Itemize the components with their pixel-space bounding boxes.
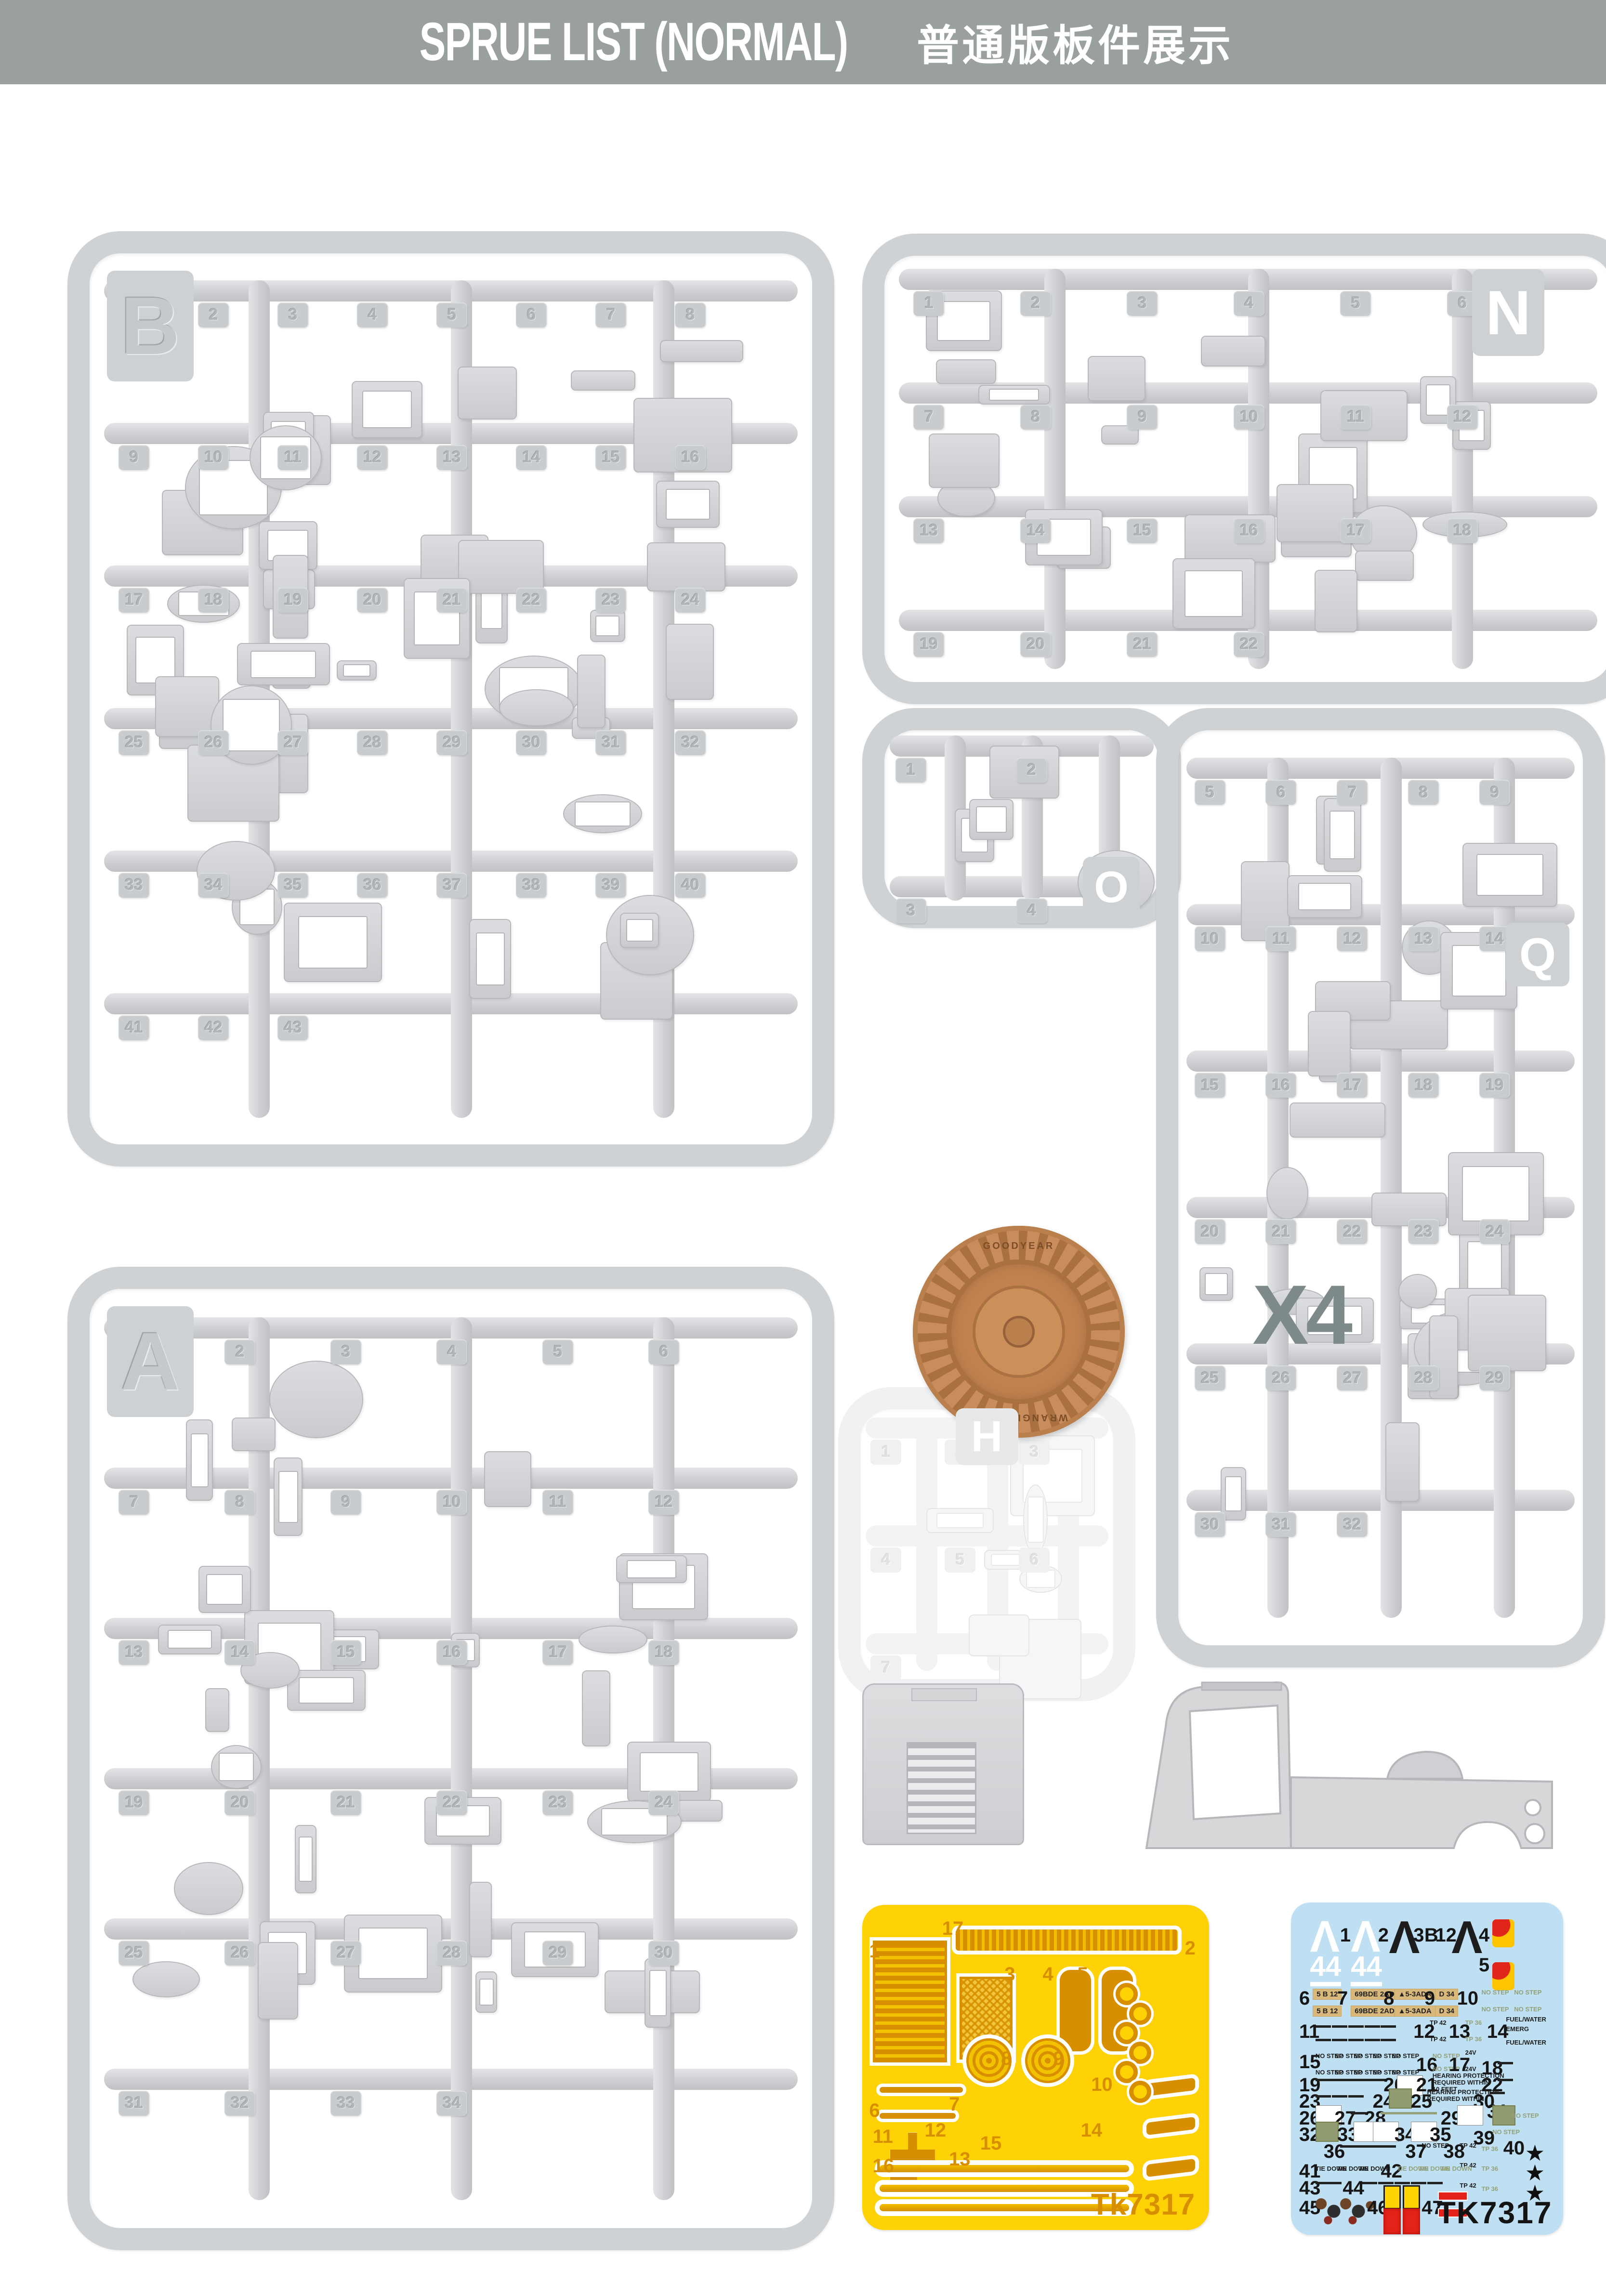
pe-part-number xyxy=(1129,2081,1151,2103)
part-number-tag: 16 xyxy=(1234,518,1264,543)
decal-item xyxy=(1457,2105,1483,2125)
decal-item xyxy=(1316,2025,1331,2028)
part-number-tag: 28 xyxy=(1408,1365,1439,1391)
decal-item: 40 xyxy=(1503,2139,1525,2158)
decal-item: D 34 xyxy=(1435,2006,1458,2017)
photo-etch-fret: 1172345678910111213141516 Tk7317 xyxy=(862,1905,1209,2230)
sprue-b: 1234567891011121314151617181920212223242… xyxy=(67,231,834,1167)
molded-part xyxy=(936,359,997,384)
sprue-runner xyxy=(1452,269,1473,669)
decal-item xyxy=(1403,2208,1420,2234)
part-number-tag: 3 xyxy=(1127,291,1158,316)
molded-part xyxy=(352,381,422,438)
decal-item: 5 B 12 xyxy=(1313,2006,1342,2017)
sprue-b-parts-area: 1234567891011121314151617181920212223242… xyxy=(90,253,812,1144)
decal-item xyxy=(1354,2145,1369,2148)
decal-item: NO STEP xyxy=(1482,1989,1509,1996)
part-number-tag: 41 xyxy=(118,1015,149,1040)
part-number-tag: 15 xyxy=(595,445,626,470)
molded-part xyxy=(198,1566,251,1613)
pe-part-number: 8 xyxy=(1001,2048,1012,2070)
decal-item: 5 xyxy=(1479,1955,1489,1975)
decal-item xyxy=(1316,2095,1331,2098)
molded-part xyxy=(458,540,544,593)
pe-part-number: 5 xyxy=(1077,1964,1088,1985)
decal-item xyxy=(1381,2112,1396,2114)
part-number-tag: 42 xyxy=(198,1015,229,1040)
part-number-tag: 31 xyxy=(118,2091,149,2116)
decal-item xyxy=(1383,2185,1401,2209)
part-number-tag: 19 xyxy=(913,632,944,657)
decal-item xyxy=(1316,2039,1331,2041)
molded-part xyxy=(295,1825,316,1893)
part-number-tag: 10 xyxy=(198,445,229,470)
pe-part-number: 10 xyxy=(1091,2074,1113,2096)
part-number-tag: 2 xyxy=(224,1339,255,1364)
part-number-tag: 38 xyxy=(516,873,547,898)
molded-part xyxy=(590,610,625,642)
decal-item: 24V xyxy=(1465,2065,1476,2073)
molded-part xyxy=(211,1745,262,1789)
molded-part xyxy=(1199,1267,1234,1301)
molded-part xyxy=(258,1942,298,2020)
decal-item: FUEL/WATER xyxy=(1506,2016,1546,2023)
molded-part xyxy=(337,660,377,681)
part-number-tag: 17 xyxy=(1337,1073,1368,1098)
part-number-tag: 2 xyxy=(1016,758,1047,783)
molded-part xyxy=(645,1958,671,2028)
decal-sheet: Λ1Λ44442Λ3B12Λ4565 B 12769BDE 2ADA8▲5-3A… xyxy=(1291,1902,1563,2235)
part-number-tag: 32 xyxy=(1337,1512,1368,1537)
sprue-o: 1234 O xyxy=(862,708,1181,928)
decal-item xyxy=(1332,2039,1347,2041)
part-number-tag: 6 xyxy=(1019,1548,1050,1573)
part-number-tag: 9 xyxy=(118,445,149,470)
part-number-tag: 6 xyxy=(1265,780,1296,805)
decal-item: Λ xyxy=(1351,1919,1380,1955)
pe-part-number: 1 xyxy=(869,1941,880,1962)
decal-item: 6 xyxy=(1299,1989,1310,2008)
part-number-tag: 30 xyxy=(1195,1512,1225,1537)
decal-item: NO STEP xyxy=(1514,1989,1541,1996)
part-number-tag: 21 xyxy=(330,1790,361,1815)
part-number-tag: 25 xyxy=(118,1941,149,1966)
part-number-tag: 16 xyxy=(436,1640,467,1665)
part-number-tag: 22 xyxy=(1337,1219,1368,1244)
part-number-tag: 22 xyxy=(436,1790,467,1815)
decal-item xyxy=(1332,2025,1347,2028)
molded-part xyxy=(620,913,659,948)
part-number-tag: 33 xyxy=(118,873,149,898)
pe-part-number xyxy=(1116,2061,1138,2083)
wheel-hub-cap xyxy=(1003,1316,1034,1347)
part-number-tag: 14 xyxy=(516,445,547,470)
molded-part xyxy=(1201,336,1266,367)
molded-part xyxy=(232,1417,275,1451)
sprue-h-clear: 1234567 H xyxy=(838,1387,1135,1701)
molded-part xyxy=(656,481,720,528)
decal-item: TP 42 xyxy=(1460,2142,1476,2149)
part-number-tag: 31 xyxy=(595,730,626,755)
molded-part xyxy=(571,370,635,391)
wheel-hub xyxy=(973,1286,1065,1378)
decal-item xyxy=(1367,2145,1382,2148)
part-number-tag: 17 xyxy=(118,588,149,613)
decal-item xyxy=(1492,1919,1514,1947)
decal-item xyxy=(1383,2208,1401,2234)
molded-part xyxy=(647,542,725,591)
decal-item xyxy=(1362,2182,1377,2184)
molded-part xyxy=(186,1419,213,1501)
molded-part xyxy=(1385,1422,1420,1502)
molded-part xyxy=(155,676,219,737)
sprue-letter-n: N xyxy=(1472,269,1544,356)
engine-hood-part xyxy=(862,1683,1024,1845)
decal-item xyxy=(1329,2079,1344,2081)
molded-part xyxy=(499,689,574,727)
part-number-tag: 21 xyxy=(436,588,467,613)
part-number-tag: 43 xyxy=(277,1015,308,1040)
part-number-tag: 2 xyxy=(198,302,229,328)
pe-part-number: 15 xyxy=(980,2133,1002,2154)
decal-item: TP 36 xyxy=(1465,2035,1482,2043)
decal-item xyxy=(1348,2039,1364,2041)
part-number-tag: 7 xyxy=(870,1655,901,1680)
part-number-tag: 34 xyxy=(436,2091,467,2116)
molded-part xyxy=(174,1862,244,1915)
part-number-tag: 4 xyxy=(1234,291,1264,316)
decal-item xyxy=(1351,2112,1366,2114)
molded-part xyxy=(969,799,1014,840)
part-number-tag: 27 xyxy=(330,1941,361,1966)
decal-item: TP 42 xyxy=(1460,2182,1476,2189)
sprue-runner xyxy=(916,1417,937,1671)
part-number-tag: 32 xyxy=(675,730,706,755)
part-number-tag: 20 xyxy=(1195,1219,1225,1244)
part-number-tag: 17 xyxy=(1340,518,1371,543)
molded-part xyxy=(287,1670,366,1711)
part-number-tag: 12 xyxy=(357,445,388,470)
part-number-tag: 15 xyxy=(1127,518,1158,543)
part-number-tag: 7 xyxy=(118,1490,149,1515)
sprue-q: 5678910111213141516171819202122232425262… xyxy=(1156,708,1605,1667)
part-number-tag: 21 xyxy=(1265,1219,1296,1244)
sprue-letter-o: O xyxy=(1083,857,1140,918)
cab-shell-part xyxy=(1118,1654,1561,1850)
decal-item: NO STEP xyxy=(1514,2006,1541,2013)
decal-item: TP 36 xyxy=(1482,2145,1498,2152)
part-number-tag: 14 xyxy=(224,1640,255,1665)
molded-part xyxy=(284,903,382,982)
decal-item: 44 xyxy=(1351,1953,1382,1986)
part-number-tag: 13 xyxy=(1408,926,1439,951)
part-number-tag: 24 xyxy=(648,1790,679,1815)
decal-item: TP 42 xyxy=(1430,2035,1446,2043)
part-number-tag: 23 xyxy=(542,1790,573,1815)
part-number-tag: 11 xyxy=(1265,926,1296,951)
pe-part-number: 14 xyxy=(1081,2120,1103,2141)
decal-item: NO STEP xyxy=(1392,2052,1419,2060)
part-number-tag: 20 xyxy=(1020,632,1051,657)
molded-part xyxy=(237,643,330,685)
part-number-tag: 13 xyxy=(913,518,944,543)
part-number-tag: 23 xyxy=(1408,1219,1439,1244)
decal-item xyxy=(1427,2182,1443,2184)
decal-item: 4 xyxy=(1479,1926,1489,1945)
part-number-tag: 8 xyxy=(224,1490,255,1515)
part-number-tag: 5 xyxy=(542,1339,573,1364)
decal-item: TIE DOWN xyxy=(1441,2165,1472,2172)
molded-part xyxy=(469,919,511,999)
part-number-tag: 13 xyxy=(118,1640,149,1665)
sprue-letter-a: A xyxy=(107,1306,194,1417)
tire-brand-text: GOODYEAR xyxy=(983,1241,1055,1252)
part-number-tag: 16 xyxy=(675,445,706,470)
decal-item xyxy=(1332,2095,1347,2098)
decal-sheet-code: TK7317 xyxy=(1437,2195,1553,2230)
pe-part-number xyxy=(1129,2042,1151,2064)
decal-item: FUEL/WATER xyxy=(1506,2039,1546,2046)
sprue-q-parts-area: 5678910111213141516171819202122232425262… xyxy=(1178,730,1583,1645)
sprue-runner xyxy=(1044,269,1066,669)
decal-item xyxy=(1378,2182,1394,2184)
decal-item xyxy=(1422,2112,1437,2114)
decal-item xyxy=(1343,2079,1358,2081)
part-number-tag: 7 xyxy=(913,405,944,430)
molded-part xyxy=(660,340,744,363)
part-number-tag: 30 xyxy=(516,730,547,755)
decal-item: 44 xyxy=(1310,1953,1342,1986)
decal-item: 24V xyxy=(1465,2049,1476,2056)
molded-part xyxy=(1172,558,1255,629)
part-number-tag: 23 xyxy=(595,588,626,613)
part-number-tag: 22 xyxy=(1234,632,1264,657)
molded-part xyxy=(1324,798,1361,872)
decal-item xyxy=(1489,2092,1505,2094)
part-number-tag: 11 xyxy=(542,1490,573,1515)
sprue-letter-q: Q xyxy=(1506,923,1569,986)
part-number-tag: 9 xyxy=(1127,405,1158,430)
molded-part xyxy=(1290,1102,1385,1138)
part-number-tag: 24 xyxy=(1479,1219,1510,1244)
molded-part xyxy=(274,1457,303,1536)
decal-item: 10 xyxy=(1457,1989,1479,2008)
part-number-tag: 18 xyxy=(198,588,229,613)
part-number-tag: 6 xyxy=(516,302,547,328)
molded-part xyxy=(616,1555,687,1584)
molded-part xyxy=(926,1508,994,1533)
decal-item xyxy=(1316,2122,1339,2142)
decal-item: 1 xyxy=(1340,1926,1351,1945)
part-number-tag: 8 xyxy=(1020,405,1051,430)
sprue-list-page: SPRUE LIST (NORMAL) 普通版板件展示 123456789101… xyxy=(0,0,1606,2296)
molded-part xyxy=(577,655,606,728)
decal-item: NO STEP xyxy=(1482,2006,1509,2013)
molded-part xyxy=(978,385,1050,405)
sprue-letter-h: H xyxy=(956,1408,1018,1465)
part-number-tag: 18 xyxy=(1408,1073,1439,1098)
decal-item: TP 36 xyxy=(1482,2185,1498,2192)
part-number-tag: 2 xyxy=(1020,291,1051,316)
decal-item xyxy=(1365,2025,1380,2028)
molded-part xyxy=(269,1361,364,1438)
pe-part-number: 9 xyxy=(1053,2048,1064,2070)
part-number-tag: 5 xyxy=(1195,780,1225,805)
decal-item xyxy=(1403,2185,1420,2209)
molded-part xyxy=(929,433,1000,488)
page-title-en: SPRUE LIST (NORMAL) xyxy=(419,11,847,73)
part-number-tag: 4 xyxy=(870,1548,901,1573)
part-number-tag: 4 xyxy=(1016,898,1047,923)
part-number-tag: 15 xyxy=(330,1640,361,1665)
pe-part-number: 2 xyxy=(1185,1938,1196,1959)
molded-part xyxy=(1287,875,1363,918)
decal-item: TP 36 xyxy=(1465,2019,1482,2026)
wheel-quantity-label: X4 xyxy=(1252,1267,1350,1364)
part-number-tag: 5 xyxy=(945,1548,975,1573)
molded-part xyxy=(158,1625,221,1654)
part-number-tag: 27 xyxy=(1337,1365,1368,1391)
sprue-a: 1234567891011121314151617181920212223242… xyxy=(67,1267,834,2250)
part-number-tag: 10 xyxy=(436,1490,467,1515)
pe-part-number: 16 xyxy=(873,2155,895,2177)
decal-item xyxy=(1340,2145,1356,2148)
part-number-tag: 3 xyxy=(277,302,308,328)
part-number-tag: 20 xyxy=(357,588,388,613)
pe-part-number: 11 xyxy=(873,2126,893,2148)
pe-part-number: 3 xyxy=(1004,1964,1015,1985)
pe-part-number: 17 xyxy=(942,1918,964,1940)
header-bar: SPRUE LIST (NORMAL) 普通版板件展示 xyxy=(0,0,1606,84)
decal-item xyxy=(1492,1962,1514,1990)
part-number-tag: 7 xyxy=(1337,780,1368,805)
part-number-tag: 29 xyxy=(542,1941,573,1966)
part-number-tag: 26 xyxy=(198,730,229,755)
part-number-tag: 30 xyxy=(648,1941,679,1966)
molded-part xyxy=(205,1688,229,1732)
decal-item: ▲5-3ADA xyxy=(1395,2006,1435,2017)
page-title-zh: 普通版板件展示 xyxy=(917,12,1234,73)
decal-item: Λ xyxy=(1310,1919,1340,1955)
decal-item xyxy=(1411,2182,1426,2184)
part-number-tag: 13 xyxy=(436,445,467,470)
decal-item: NO STEP xyxy=(1492,2128,1520,2136)
part-number-tag: 25 xyxy=(118,730,149,755)
part-number-tag: 35 xyxy=(277,873,308,898)
molded-part xyxy=(1468,1295,1546,1371)
part-number-tag: 28 xyxy=(357,730,388,755)
pe-part-number xyxy=(1116,1983,1138,2005)
part-number-tag: 37 xyxy=(436,873,467,898)
part-number-tag: 9 xyxy=(330,1490,361,1515)
pe-part-number: 4 xyxy=(1042,1964,1053,1985)
sprue-a-parts-area: 1234567891011121314151617181920212223242… xyxy=(90,1289,812,2228)
decal-item xyxy=(1326,2182,1342,2184)
molded-part xyxy=(458,367,517,420)
molded-part xyxy=(579,1626,647,1653)
part-number-tag: 4 xyxy=(436,1339,467,1364)
part-number-tag: 33 xyxy=(330,2091,361,2116)
molded-part xyxy=(563,794,642,833)
part-number-tag: 1 xyxy=(870,1440,901,1465)
decal-item: REQUIRED WITHIN xyxy=(1433,2079,1489,2086)
pe-part-number: 7 xyxy=(949,2094,960,2115)
decal-item xyxy=(1395,2182,1410,2184)
part-number-tag: 12 xyxy=(1337,926,1368,951)
decal-items-layer: Λ1Λ44442Λ3B12Λ4565 B 12769BDE 2ADA8▲5-3A… xyxy=(1291,1902,1563,2235)
decal-item: D 34 xyxy=(1435,1989,1458,2000)
decal-item xyxy=(1381,2025,1396,2028)
decal-item xyxy=(1348,2095,1364,2098)
part-number-tag: 8 xyxy=(675,302,706,328)
part-number-tag: 10 xyxy=(1234,405,1264,430)
pe-part-number: 13 xyxy=(949,2149,971,2170)
part-number-tag: 19 xyxy=(277,588,308,613)
decal-item xyxy=(1381,2145,1396,2148)
molded-part xyxy=(1398,1274,1437,1309)
decal-item: TP 36 xyxy=(1482,2165,1498,2172)
part-number-tag: 16 xyxy=(1265,1073,1296,1098)
part-number-tag: 34 xyxy=(198,873,229,898)
part-number-tag: 18 xyxy=(1447,518,1478,543)
molded-part xyxy=(582,1670,610,1746)
part-number-tag: 32 xyxy=(224,2091,255,2116)
molded-part xyxy=(1308,1011,1351,1077)
part-number-tag: 12 xyxy=(648,1490,679,1515)
part-number-tag: 20 xyxy=(224,1790,255,1815)
part-number-tag: 9 xyxy=(1479,780,1510,805)
decal-item: 14 xyxy=(1487,2022,1509,2041)
decal-item xyxy=(1408,2112,1423,2114)
molded-part xyxy=(1023,1484,1048,1554)
decal-item xyxy=(1389,2088,1412,2109)
pe-fret-code: Tk7317 xyxy=(1091,2188,1195,2222)
part-number-tag: 3 xyxy=(1019,1440,1050,1465)
molded-part xyxy=(1355,551,1413,581)
part-number-tag: 7 xyxy=(595,302,626,328)
decal-item xyxy=(1365,2039,1380,2041)
decal-item xyxy=(1395,2112,1410,2114)
part-number-tag: 17 xyxy=(542,1640,573,1665)
decal-item xyxy=(1381,2039,1396,2041)
pe-part-number xyxy=(1129,2003,1151,2025)
part-number-tag: 26 xyxy=(1265,1365,1296,1391)
part-number-tag: 3 xyxy=(895,898,926,923)
part-number-tag: 29 xyxy=(1479,1365,1510,1391)
pe-part-number: 12 xyxy=(925,2120,947,2141)
decal-item: NO STEP xyxy=(1512,2112,1539,2119)
molded-part xyxy=(1266,1167,1308,1220)
wheel-rim xyxy=(947,1260,1091,1404)
sprue-n: 12345678910111213141516171819202122 N xyxy=(862,234,1606,704)
decal-item: EMERG xyxy=(1506,2025,1529,2033)
part-number-tag: 12 xyxy=(1447,405,1478,430)
rubber-tire-part: GOODYEAR WRANGLER R/T xyxy=(913,1226,1125,1438)
molded-part xyxy=(666,624,714,700)
part-number-tag: 5 xyxy=(1340,291,1371,316)
molded-part xyxy=(469,1882,492,1957)
decal-item xyxy=(1370,2079,1385,2081)
part-number-tag: 26 xyxy=(224,1941,255,1966)
part-number-tag: 4 xyxy=(357,302,388,328)
decal-item: 3 xyxy=(1413,1926,1424,1945)
part-number-tag: 3 xyxy=(330,1339,361,1364)
decal-item: Λ xyxy=(1451,1919,1482,1956)
part-number-tag: 21 xyxy=(1127,632,1158,657)
molded-part xyxy=(969,1614,1029,1657)
part-number-tag: 1 xyxy=(913,291,944,316)
pe-part-number: 6 xyxy=(869,2100,880,2122)
